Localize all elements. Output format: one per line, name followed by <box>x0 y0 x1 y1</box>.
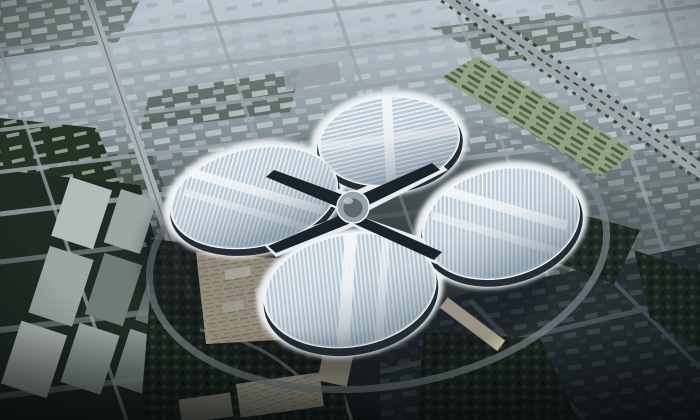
rendering-canvas <box>0 0 700 420</box>
vignette <box>0 0 700 420</box>
aerial-rendering <box>0 0 700 420</box>
